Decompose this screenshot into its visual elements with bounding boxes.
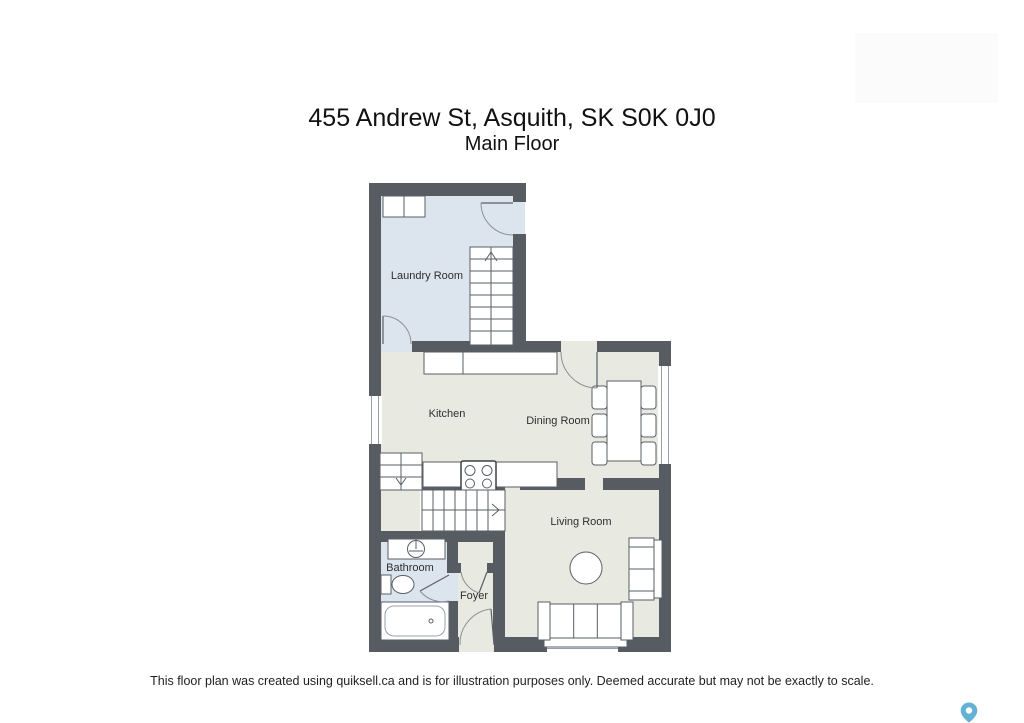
map-pin-icon (961, 703, 978, 723)
wall-right-upper (659, 341, 671, 366)
stairs-main-run (422, 490, 505, 531)
sofa (538, 602, 633, 647)
floor-plan: Laundry Room Kitchen Dining Room Living … (0, 0, 1024, 723)
laundry-door-gap (381, 341, 412, 352)
stairs-up (470, 247, 513, 345)
chair (641, 442, 656, 465)
chair (592, 414, 607, 437)
room-label-foyer: Foyer (460, 590, 488, 602)
chair (641, 386, 656, 409)
round-table (570, 552, 602, 584)
laundry-entry-gap (513, 202, 525, 234)
wall-laundry-right-upper (513, 183, 526, 202)
chair (592, 386, 607, 409)
dining-door-gap (561, 341, 597, 352)
stove-icon (461, 461, 496, 492)
room-label-living: Living Room (550, 516, 611, 528)
bathtub-icon (381, 602, 449, 640)
room-label-dining: Dining Room (526, 415, 590, 427)
wall-foyer-stub-left (447, 563, 461, 573)
dining-living-opening (585, 478, 603, 490)
wall-foyer-stub-right (487, 563, 505, 573)
kitchen-counter-top (424, 352, 557, 374)
dining-table (592, 381, 656, 465)
wall-foyer-living (493, 531, 505, 637)
vanity-sink-icon (388, 535, 445, 559)
dining-window (658, 366, 672, 464)
stairs-down-small (380, 453, 422, 490)
bathroom-door-gap (447, 573, 458, 601)
room-label-laundry: Laundry Room (391, 270, 463, 282)
disclaimer-text: This floor plan was created using quikse… (0, 674, 1024, 688)
wall-laundry-right-lower (513, 234, 526, 346)
washer-dryer-icon (383, 196, 425, 217)
toilet-icon (381, 575, 414, 594)
chair (592, 442, 607, 465)
front-door-gap (459, 637, 494, 652)
wall-top (369, 183, 526, 196)
wall-dining-living-divider-b (603, 478, 660, 490)
room-label-bathroom: Bathroom (386, 562, 434, 574)
room-label-kitchen: Kitchen (429, 408, 466, 420)
foyer-doorway-gap (461, 563, 487, 573)
chair (641, 414, 656, 437)
loveseat (629, 538, 662, 600)
kitchen-window (368, 396, 382, 444)
